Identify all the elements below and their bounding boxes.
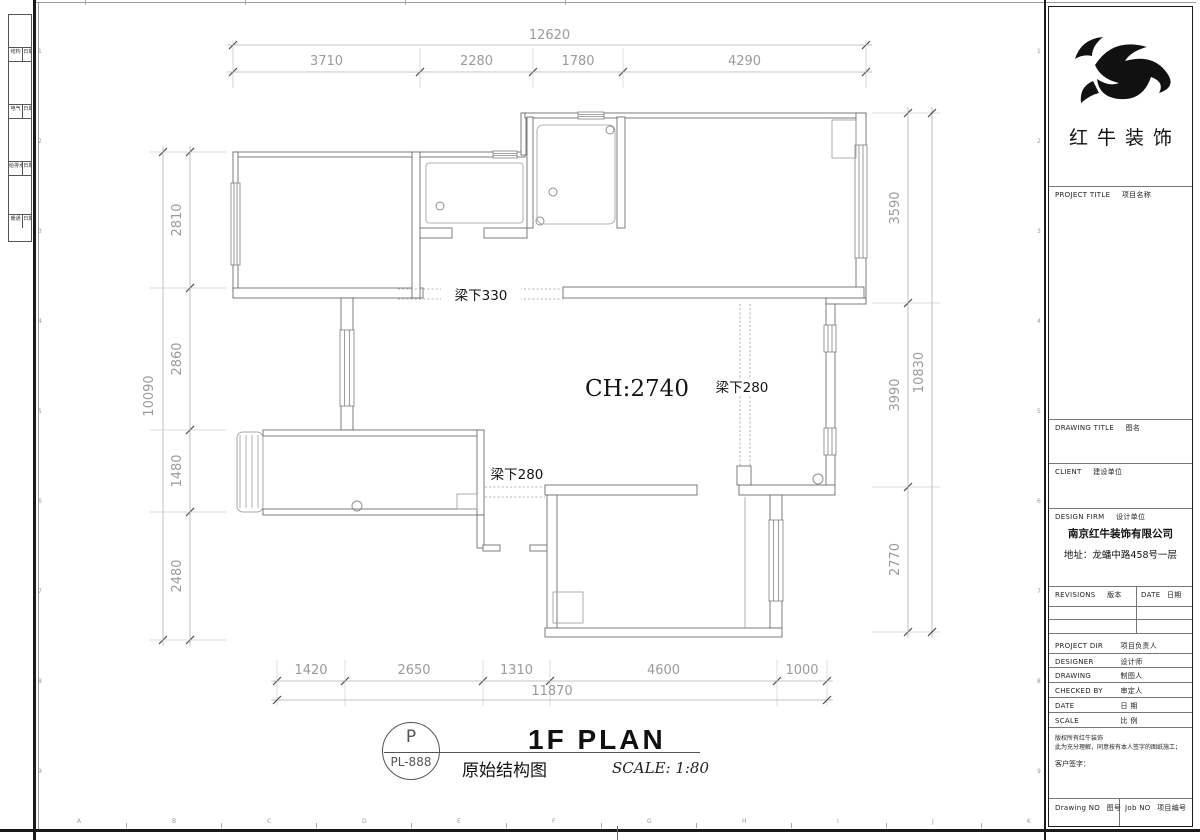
- label-cn: 图号: [1107, 804, 1122, 812]
- divider: [1049, 712, 1192, 713]
- label-cn: 设计师: [1121, 658, 1143, 666]
- fixtures-layer: [237, 120, 856, 628]
- field-row: DATE 日 期: [1055, 701, 1138, 711]
- dimension-label: 1780: [561, 54, 594, 69]
- dimension-label: 4600: [647, 663, 680, 678]
- fixture: [553, 592, 583, 623]
- redniu-logo-icon: [1065, 35, 1177, 117]
- label-en: DRAWING TITLE: [1055, 424, 1114, 432]
- dimension-label: 1480: [170, 454, 185, 487]
- dimension-label: 10090: [142, 375, 157, 416]
- beam-280-right-label: 梁下280: [716, 380, 769, 396]
- dimension-label: 2280: [460, 54, 493, 69]
- title-block: 红牛装饰 PROJECT TITLE 项目名称 DRAWING TITLE 图名…: [1048, 6, 1193, 827]
- field-row: SCALE 比 例: [1055, 716, 1138, 726]
- label-en: DATE: [1055, 702, 1109, 710]
- label-en: REVISIONS: [1055, 591, 1096, 599]
- divider: [1049, 727, 1192, 728]
- label-cn: 日期: [1167, 591, 1182, 599]
- label-en: Drawing NO: [1055, 804, 1100, 812]
- window: [769, 520, 783, 601]
- divider: [1049, 619, 1192, 620]
- fixture: [426, 163, 523, 223]
- field-row: DESIGNER 设计师: [1055, 657, 1142, 667]
- dimensions-layer: 1262037102280178042901420265013104600100…: [142, 28, 940, 706]
- wall: [420, 228, 452, 238]
- stamp-letter: P: [382, 727, 440, 747]
- wall: [483, 545, 500, 551]
- wall: [527, 117, 533, 228]
- window: [578, 112, 604, 119]
- label-cn: 项目编号: [1157, 804, 1186, 812]
- wall: [545, 628, 782, 637]
- floor-drain-icon: [436, 202, 444, 210]
- beam-330-label: 梁下330: [455, 288, 508, 304]
- wall: [563, 287, 864, 298]
- dimension-label: 4290: [728, 54, 761, 69]
- window: [824, 325, 836, 352]
- window: [855, 145, 867, 258]
- brand-name: 红牛装饰: [1049, 123, 1192, 150]
- wall: [484, 228, 527, 238]
- label-cn: 比 例: [1121, 717, 1138, 725]
- client-row: CLIENT 建设单位: [1055, 467, 1122, 477]
- divider: [1049, 419, 1192, 420]
- window: [824, 428, 836, 455]
- label-cn: 图名: [1126, 424, 1141, 432]
- floor-drain-icon: [536, 217, 544, 225]
- label-en: DESIGN FIRM: [1055, 513, 1105, 521]
- drawing-sheet: 结构 日期 电气 日期 给排水 日期 暖通 日期 ABCDEFGHIJK1122…: [0, 0, 1200, 840]
- dimension-label: 12620: [529, 28, 570, 43]
- window: [493, 151, 517, 158]
- disclaimer-line: 此为充分理解，同意按有本人签字的图纸施工；: [1055, 742, 1181, 751]
- dimension-label: 3990: [888, 378, 903, 411]
- label-cn: 审定人: [1121, 687, 1143, 695]
- wall: [525, 113, 866, 118]
- divider: [1049, 653, 1192, 654]
- company-name: 南京红牛装饰有限公司: [1049, 526, 1192, 541]
- dimension-label: 1310: [500, 663, 533, 678]
- drawing-title-row: DRAWING TITLE 图名: [1055, 423, 1140, 433]
- label-cn: 日 期: [1121, 702, 1138, 710]
- label-cn: 设计单位: [1116, 513, 1145, 521]
- wall: [530, 545, 547, 551]
- label-en: CHECKED BY: [1055, 687, 1109, 695]
- label-en: PROJECT DIR: [1055, 642, 1109, 650]
- wall: [521, 113, 526, 155]
- beams-layer: [398, 289, 750, 497]
- floor-drain-icon: [606, 126, 614, 134]
- dimension-label: 2770: [888, 543, 903, 576]
- divider: [1049, 186, 1192, 187]
- wall: [233, 152, 525, 157]
- label-en: Job NO: [1125, 804, 1151, 812]
- dimension-label: 10830: [912, 352, 927, 393]
- floor-drain-icon: [549, 188, 557, 196]
- divider: [1049, 586, 1192, 587]
- bay-window: [237, 432, 263, 512]
- disclaimer-line: 版权所有红牛装饰: [1055, 733, 1103, 742]
- dimension-label: 2810: [170, 203, 185, 236]
- field-row: DRAWING 制图人: [1055, 671, 1142, 681]
- customer-sign-label: 客户签字：: [1055, 759, 1090, 769]
- label-en: SCALE: [1055, 717, 1109, 725]
- window: [340, 330, 354, 406]
- dimension-label: 2650: [397, 663, 430, 678]
- floor-drain-icon: [813, 474, 823, 484]
- wall: [477, 430, 484, 515]
- field-row: CHECKED BY 审定人: [1055, 686, 1142, 696]
- dimension-label: 1420: [294, 663, 327, 678]
- label-cn: 制图人: [1121, 672, 1143, 680]
- date-column-header: DATE 日期: [1141, 590, 1182, 600]
- divider: [1136, 586, 1137, 633]
- stamp-number: PL-888: [382, 755, 440, 769]
- divider: [1049, 697, 1192, 698]
- design-firm-row: DESIGN FIRM 设计单位: [1055, 512, 1145, 522]
- fixture: [832, 120, 856, 158]
- drawing-no-row: Drawing NO 图号: [1055, 803, 1121, 813]
- wall: [826, 298, 866, 304]
- label-en: PROJECT TITLE: [1055, 191, 1110, 199]
- wall: [263, 509, 479, 515]
- job-no-row: Job NO 项目编号: [1125, 803, 1186, 813]
- revisions-header: REVISIONS 版本: [1055, 590, 1122, 600]
- wall: [412, 152, 420, 298]
- label-en: DESIGNER: [1055, 658, 1109, 666]
- divider: [1049, 606, 1192, 607]
- label-en: DATE: [1141, 591, 1160, 599]
- fixture: [537, 125, 615, 224]
- dimension-label: 3710: [310, 54, 343, 69]
- field-row: PROJECT DIR 项目负责人: [1055, 641, 1157, 651]
- wall: [739, 485, 835, 495]
- floor-plan: 1262037102280178042901420265013104600100…: [0, 0, 1200, 840]
- divider: [1049, 682, 1192, 683]
- wall: [233, 288, 423, 298]
- dimension-label: 3590: [888, 191, 903, 224]
- label-cn: 项目名称: [1122, 191, 1151, 199]
- wall: [263, 430, 479, 436]
- wall: [547, 495, 557, 628]
- divider: [1049, 798, 1192, 799]
- plan-title: 1F PLAN: [528, 724, 666, 756]
- wall: [545, 485, 697, 495]
- wall: [737, 466, 751, 485]
- label-cn: 建设单位: [1093, 468, 1122, 476]
- company-address: 地址：龙蟠中路458号一层: [1049, 547, 1192, 561]
- scale-label: SCALE: 1:80: [612, 759, 709, 777]
- dimension-label: 1000: [785, 663, 818, 678]
- label-en: DRAWING: [1055, 672, 1109, 680]
- dimension-label: 2860: [170, 342, 185, 375]
- ceiling-height-label: CH:2740: [585, 376, 689, 402]
- divider: [1049, 508, 1192, 509]
- project-title-row: PROJECT TITLE 项目名称: [1055, 190, 1151, 200]
- window: [231, 183, 240, 265]
- label-cn: 版本: [1107, 591, 1122, 599]
- dimension-label: 11870: [531, 684, 572, 699]
- label-cn: 项目负责人: [1121, 642, 1158, 650]
- divider: [1049, 667, 1192, 668]
- wall: [617, 117, 625, 228]
- divider: [1049, 463, 1192, 464]
- divider: [1049, 633, 1192, 634]
- label-en: CLIENT: [1055, 468, 1082, 476]
- plan-subtitle: 原始结构图: [462, 756, 547, 781]
- fixture: [457, 494, 477, 509]
- beam-280-left-label: 梁下280: [491, 467, 544, 483]
- dimension-label: 2480: [170, 559, 185, 592]
- wall: [477, 515, 484, 548]
